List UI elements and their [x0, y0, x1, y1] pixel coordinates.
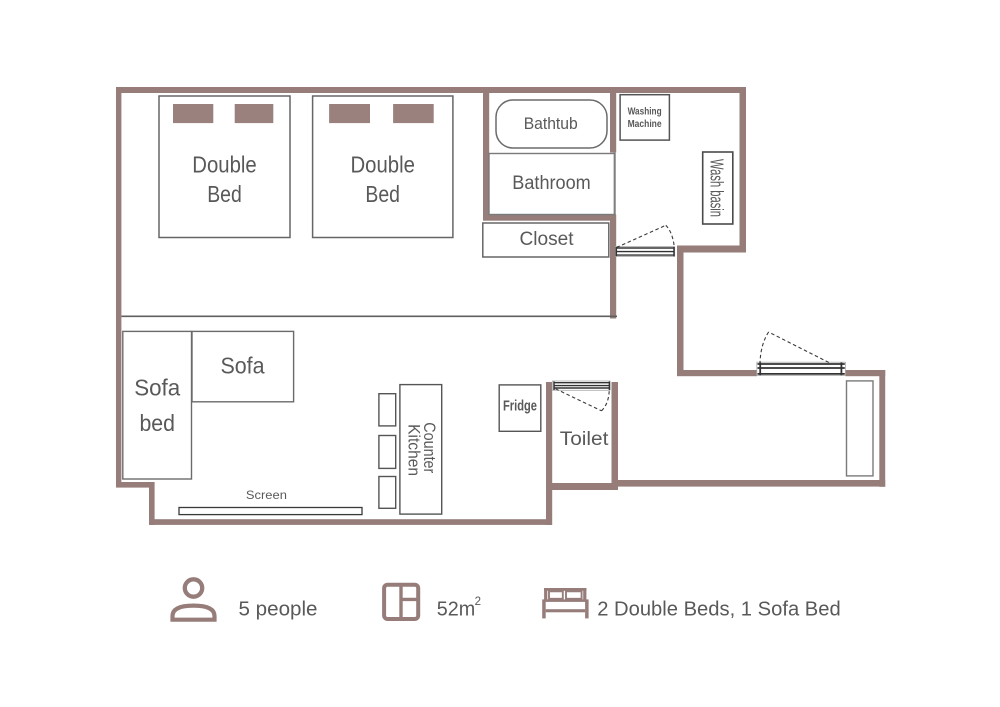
svg-text:52m: 52m	[437, 598, 476, 621]
svg-text:2: 2	[475, 596, 481, 608]
svg-text:Wash basin: Wash basin	[707, 159, 727, 217]
svg-text:Kitchen: Kitchen	[404, 424, 423, 476]
svg-text:Washing: Washing	[628, 105, 662, 117]
svg-text:Bed: Bed	[365, 181, 400, 207]
svg-text:bed: bed	[139, 410, 175, 436]
svg-text:Sofa: Sofa	[220, 353, 264, 379]
svg-text:Toilet: Toilet	[560, 429, 609, 450]
svg-text:Machine: Machine	[628, 118, 662, 130]
svg-text:Fridge: Fridge	[503, 399, 537, 415]
svg-text:Double: Double	[192, 152, 256, 178]
svg-text:Sofa: Sofa	[134, 375, 180, 401]
svg-text:Double: Double	[351, 152, 415, 178]
svg-text:Closet: Closet	[520, 229, 575, 250]
svg-text:5 people: 5 people	[239, 598, 318, 621]
svg-text:Bathtub: Bathtub	[524, 115, 578, 133]
svg-text:2 Double Beds, 1 Sofa Bed: 2 Double Beds, 1 Sofa Bed	[597, 598, 841, 621]
svg-text:Bathroom: Bathroom	[512, 173, 590, 194]
svg-text:Screen: Screen	[246, 490, 287, 502]
svg-text:Bed: Bed	[207, 181, 242, 207]
